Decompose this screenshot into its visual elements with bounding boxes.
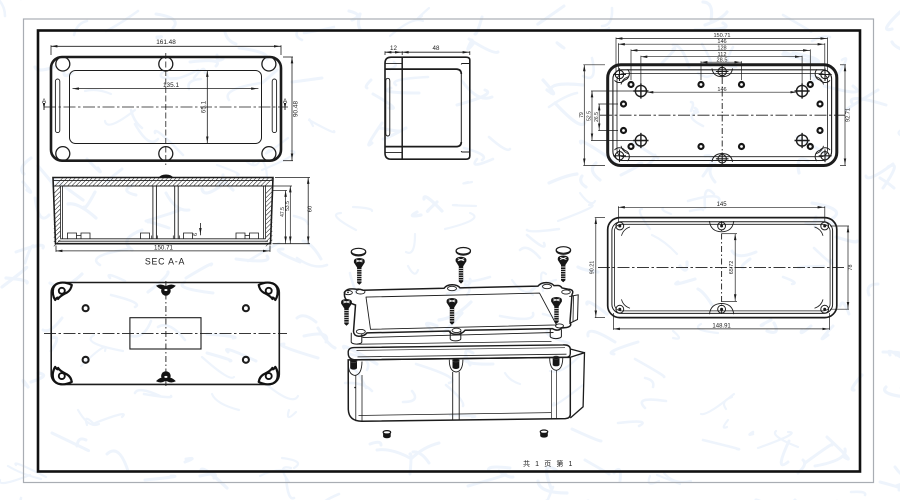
svg-text:12: 12 — [390, 45, 397, 52]
svg-text:SEC A-A: SEC A-A — [145, 257, 185, 267]
svg-text:65.72: 65.72 — [729, 261, 735, 275]
svg-text:150.71: 150.71 — [713, 33, 730, 39]
svg-text:92.71: 92.71 — [846, 108, 852, 122]
svg-text:6: 6 — [193, 233, 199, 236]
svg-text:90.21: 90.21 — [589, 261, 595, 275]
svg-text:146: 146 — [717, 39, 726, 45]
svg-text:28.5: 28.5 — [717, 58, 728, 64]
svg-text:135.1: 135.1 — [163, 82, 179, 89]
svg-text:145: 145 — [717, 202, 728, 208]
svg-text:146: 146 — [717, 87, 726, 93]
svg-text:78: 78 — [848, 265, 854, 271]
svg-text:48: 48 — [433, 45, 440, 52]
svg-text:150.71: 150.71 — [154, 244, 173, 251]
svg-text:90.48: 90.48 — [293, 101, 300, 117]
svg-text:79: 79 — [579, 112, 585, 118]
svg-text:65.1: 65.1 — [201, 100, 208, 113]
svg-text:60: 60 — [308, 206, 314, 212]
svg-text:148.91: 148.91 — [712, 323, 731, 329]
svg-text:52.5: 52.5 — [587, 111, 593, 121]
svg-text:128: 128 — [717, 46, 726, 52]
svg-text:A: A — [42, 98, 47, 105]
svg-text:161.48: 161.48 — [156, 39, 176, 46]
svg-text:26.5: 26.5 — [594, 112, 600, 122]
svg-text:A: A — [283, 98, 288, 105]
svg-text:53.5: 53.5 — [285, 201, 291, 211]
svg-text:共 1 页 第 1: 共 1 页 第 1 — [523, 459, 574, 468]
